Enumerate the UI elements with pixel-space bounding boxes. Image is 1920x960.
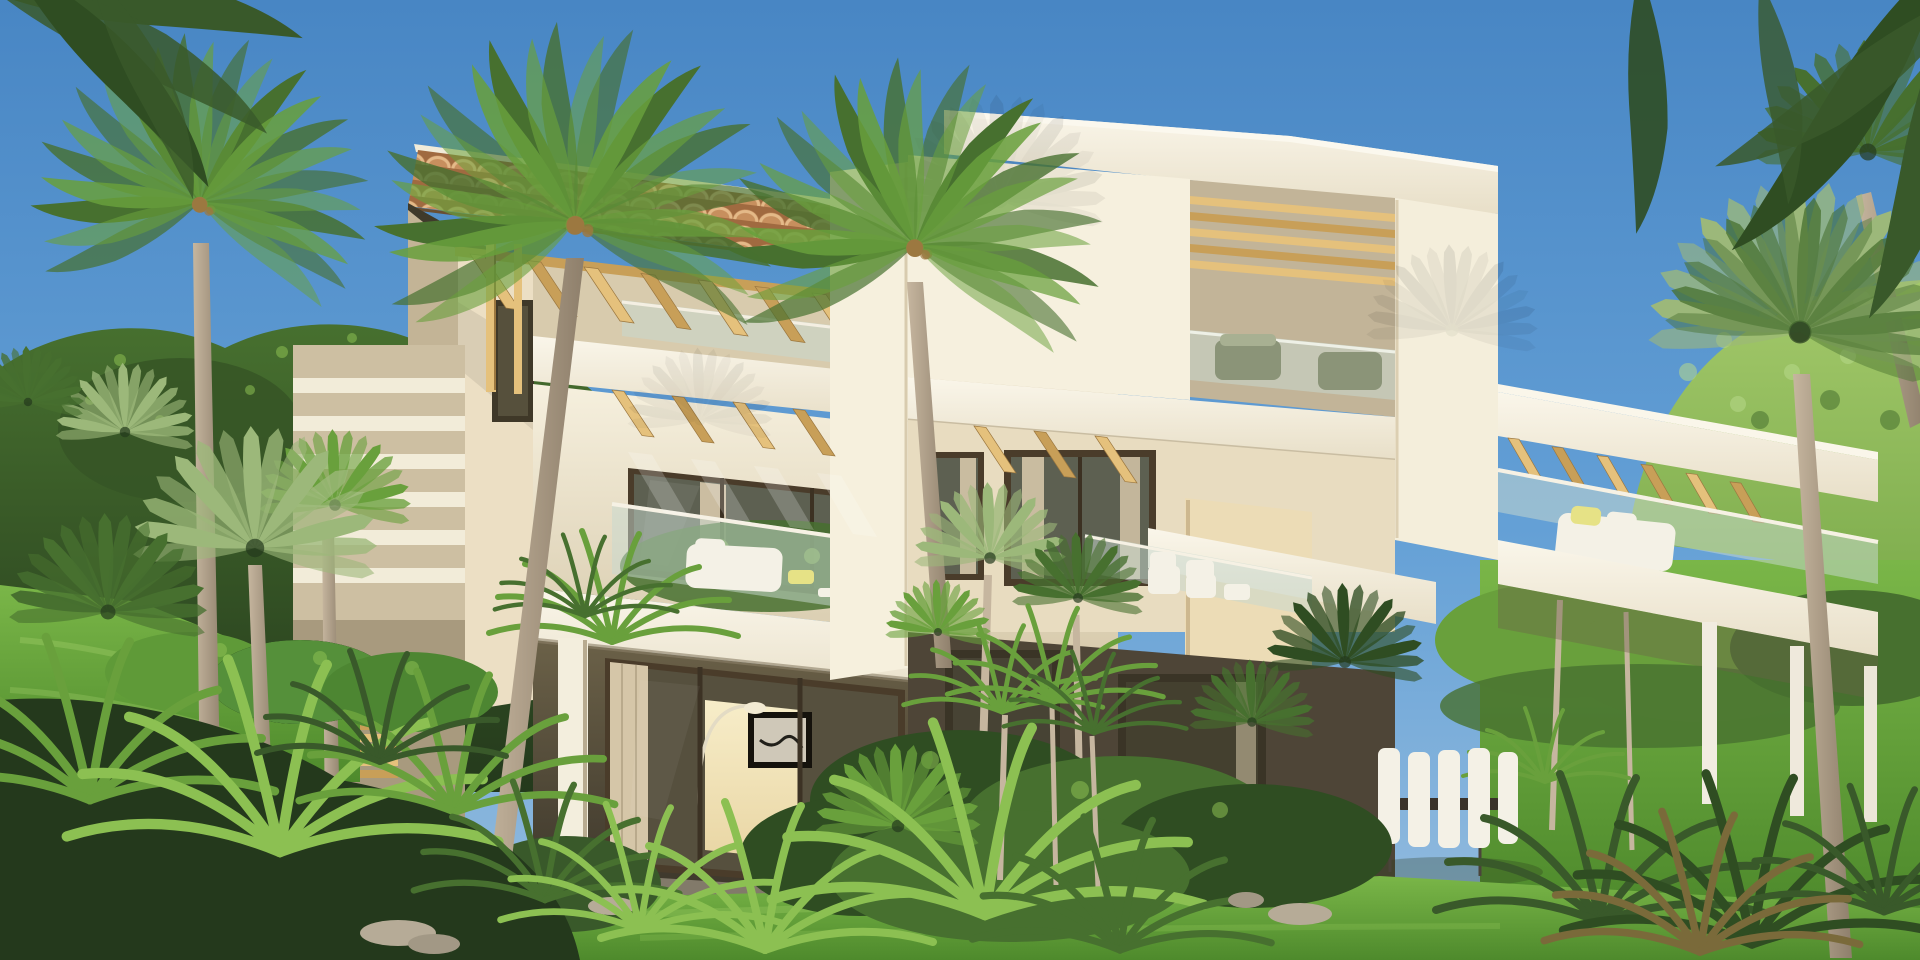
- rock: [1228, 892, 1264, 908]
- rock: [408, 934, 460, 954]
- terrace-seat: [1318, 352, 1382, 390]
- wing-column: [1864, 666, 1877, 822]
- rooftop-terrace: [1190, 180, 1395, 417]
- rock: [1268, 903, 1332, 925]
- villa-scene: [0, 0, 1920, 960]
- rendered-photo: [0, 0, 1920, 960]
- yellow-cushion: [788, 570, 814, 584]
